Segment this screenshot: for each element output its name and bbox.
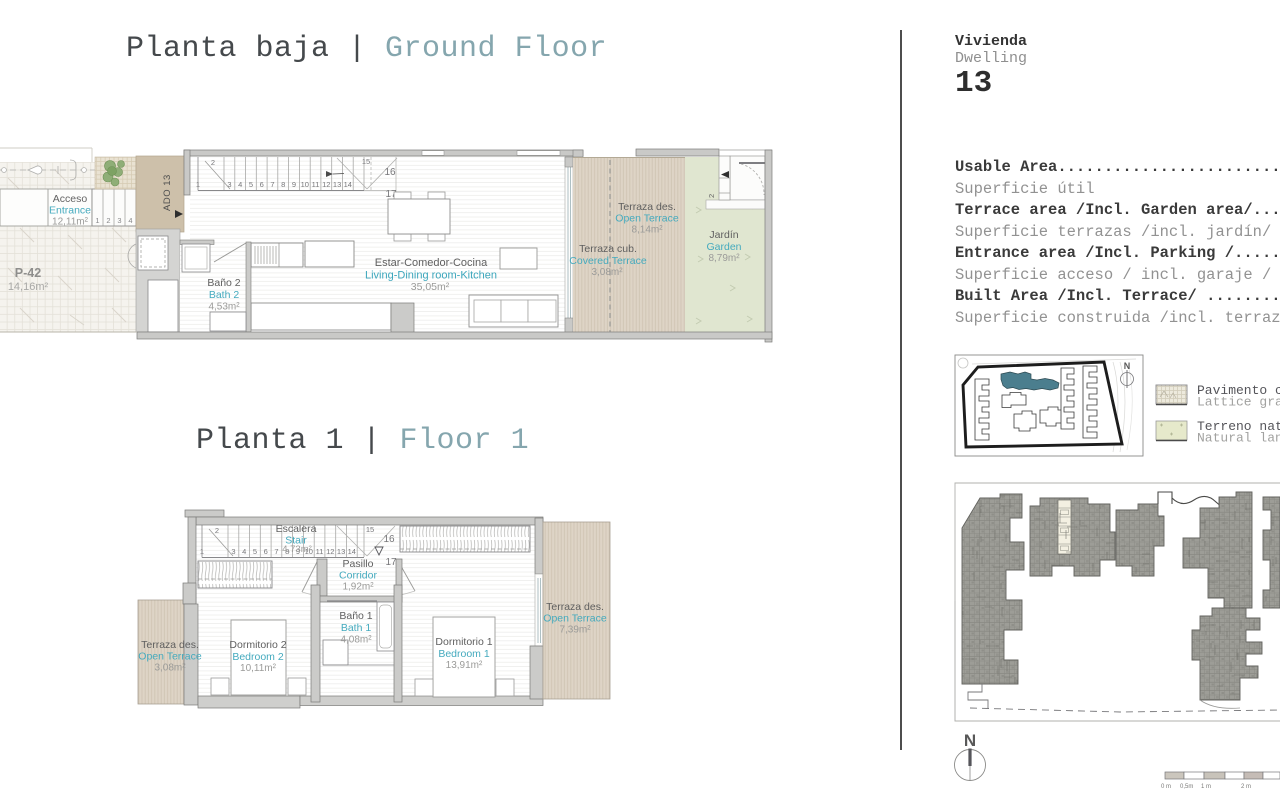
svg-text:Terraza des.: Terraza des. [546, 601, 604, 613]
svg-text:1: 1 [196, 180, 200, 189]
svg-text:8,79m²: 8,79m² [708, 253, 740, 264]
svg-text:Estar-Comedor-Cocina: Estar-Comedor-Cocina [375, 257, 488, 269]
svg-text:1 m: 1 m [1201, 784, 1211, 790]
svg-text:4: 4 [242, 547, 246, 556]
svg-text:3: 3 [227, 180, 231, 189]
svg-text:ADO 13: ADO 13 [162, 174, 173, 211]
svg-text:11: 11 [312, 180, 320, 189]
svg-text:Bedroom 2: Bedroom 2 [232, 651, 284, 663]
svg-text:Baño 1: Baño 1 [339, 610, 372, 622]
svg-text:Bath 2: Bath 2 [209, 289, 240, 301]
svg-text:4,08m²: 4,08m² [340, 635, 372, 646]
svg-text:8: 8 [281, 180, 285, 189]
svg-text:15: 15 [366, 525, 374, 534]
svg-text:13: 13 [337, 547, 345, 556]
svg-text:Acceso: Acceso [53, 193, 88, 205]
svg-text:12: 12 [322, 180, 330, 189]
svg-text:12,11m²: 12,11m² [52, 217, 89, 228]
svg-text:0,5m: 0,5m [1180, 784, 1193, 790]
svg-text:Jardín: Jardín [709, 229, 738, 241]
svg-text:Terraza cub.: Terraza cub. [579, 243, 637, 255]
svg-text:35,05m²: 35,05m² [411, 281, 450, 293]
svg-text:N: N [1124, 361, 1131, 371]
svg-text:2: 2 [106, 216, 110, 225]
svg-text:14: 14 [348, 547, 356, 556]
svg-text:6: 6 [264, 547, 268, 556]
svg-text:12: 12 [326, 547, 334, 556]
svg-text:Corridor: Corridor [339, 570, 377, 582]
svg-text:4,53m²: 4,53m² [208, 302, 240, 313]
svg-text:14: 14 [344, 180, 352, 189]
svg-text:15: 15 [362, 157, 370, 166]
svg-text:Living-Dining room-Kitchen: Living-Dining room-Kitchen [365, 270, 497, 282]
svg-text:16: 16 [383, 534, 395, 545]
svg-text:5: 5 [253, 547, 257, 556]
svg-text:4: 4 [128, 216, 132, 225]
svg-text:Open Terrace: Open Terrace [615, 213, 679, 225]
svg-text:4: 4 [238, 180, 242, 189]
svg-text:4,73m²: 4,73m² [282, 544, 312, 555]
svg-text:16: 16 [384, 167, 396, 178]
svg-text:1: 1 [200, 547, 204, 556]
svg-text:7: 7 [270, 180, 274, 189]
svg-text:1,92m²: 1,92m² [342, 582, 374, 593]
svg-text:13,91m²: 13,91m² [446, 660, 483, 671]
svg-text:6: 6 [260, 180, 264, 189]
svg-text:Open Terrace: Open Terrace [543, 613, 607, 625]
svg-text:Lattice gravel pav: Lattice gravel pav [1197, 395, 1280, 410]
svg-text:Dormitorio 2: Dormitorio 2 [229, 639, 286, 651]
svg-text:2: 2 [215, 526, 219, 535]
svg-text:Pasillo: Pasillo [343, 558, 374, 570]
svg-text:Open Terrace: Open Terrace [138, 651, 202, 663]
svg-text:Entrance: Entrance [49, 205, 91, 217]
svg-text:5: 5 [249, 180, 253, 189]
svg-text:2: 2 [211, 158, 215, 167]
svg-text:P-42: P-42 [15, 266, 41, 280]
svg-text:Dormitorio 1: Dormitorio 1 [435, 636, 492, 648]
svg-text:0 m: 0 m [1161, 784, 1171, 790]
svg-text:2 m: 2 m [1241, 784, 1251, 790]
svg-text:11: 11 [316, 547, 324, 556]
svg-text:Terraza des.: Terraza des. [618, 201, 676, 213]
svg-text:10: 10 [301, 180, 309, 189]
svg-text:7,39m²: 7,39m² [559, 625, 591, 636]
svg-text:10,11m²: 10,11m² [240, 663, 277, 674]
svg-text:N: N [964, 731, 976, 750]
svg-text:Garden: Garden [706, 241, 741, 253]
svg-text:1: 1 [95, 216, 99, 225]
svg-text:17: 17 [385, 557, 397, 568]
svg-text:Bath 1: Bath 1 [341, 622, 372, 634]
svg-text:Baño 2: Baño 2 [207, 277, 240, 289]
svg-text:9: 9 [292, 180, 296, 189]
svg-text:3,08m²: 3,08m² [154, 663, 186, 674]
svg-text:14,16m²: 14,16m² [8, 281, 49, 293]
svg-text:Natural land: Natural land [1197, 431, 1280, 446]
svg-text:3,08m²: 3,08m² [591, 267, 623, 278]
svg-text:2: 2 [707, 194, 716, 198]
svg-text:13: 13 [333, 180, 341, 189]
svg-text:Terraza des.: Terraza des. [141, 639, 199, 651]
svg-text:7: 7 [274, 547, 278, 556]
svg-text:8,14m²: 8,14m² [631, 225, 663, 236]
svg-text:Bedroom 1: Bedroom 1 [438, 648, 490, 660]
svg-text:Covered Terrace: Covered Terrace [569, 255, 647, 267]
svg-text:3: 3 [117, 216, 121, 225]
